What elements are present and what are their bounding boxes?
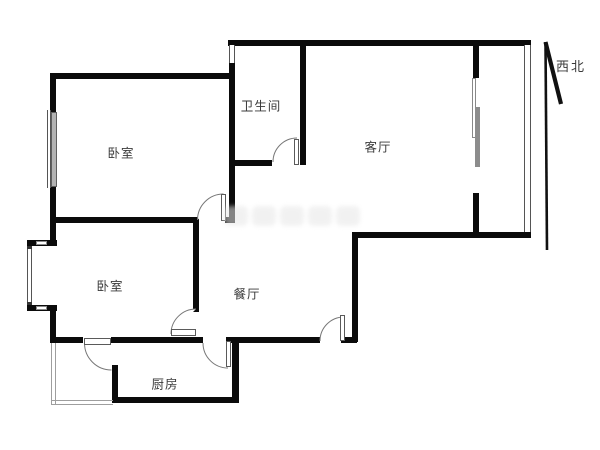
wall-balcony-partition-bottom <box>473 193 479 237</box>
room-label-bedroom1: 卧室 <box>107 143 134 162</box>
wall-balcony-partition-top <box>473 44 479 78</box>
room-label-bedroom2: 卧室 <box>96 276 123 295</box>
bay-window-top-slot <box>36 241 47 245</box>
compass-arrow-shaft <box>546 42 548 250</box>
terrace-line-bottom-outer <box>51 404 113 405</box>
wall-top <box>228 40 531 46</box>
wall-dining-right <box>352 232 358 342</box>
wall-south-2 <box>111 337 203 343</box>
wall-bathroom-left <box>229 69 235 222</box>
wall-left-mid <box>50 187 56 245</box>
room-label-kitchen: 厨房 <box>151 374 178 393</box>
terrace-line-left-outer <box>51 343 52 405</box>
watermark <box>222 204 397 234</box>
dining-kitchen-door-arc <box>203 343 228 368</box>
room-label-bathroom: 卫生间 <box>241 96 282 115</box>
terrace-line-bottom-inner <box>51 400 113 401</box>
living-right-window-icon <box>524 45 531 232</box>
wall-kitchen-left <box>112 365 118 403</box>
wall-kitchen-right <box>232 337 239 404</box>
terrace-line-left-inner <box>55 343 56 405</box>
bedroom2-door-panel <box>171 329 196 336</box>
north-small-window-cap <box>229 63 235 69</box>
wall-bathroom-bottom <box>231 160 272 166</box>
wall-south-3 <box>226 337 320 343</box>
sliding-door-moving-panel <box>475 107 480 167</box>
bay-window-glass-icon <box>27 246 33 305</box>
kitchen-terrace-door-arc <box>85 343 112 370</box>
dining-kitchen-door-panel <box>226 341 231 367</box>
wall-kitchen-bottom <box>112 397 238 403</box>
bathroom-door-panel <box>294 139 299 165</box>
bedroom1-window-icon <box>51 112 57 187</box>
wall-bedroom2-dining <box>193 217 199 312</box>
entrance-door-panel <box>340 315 345 341</box>
kitchen-terrace-door-panel <box>84 338 111 345</box>
north-small-window-icon <box>229 45 235 64</box>
compass-label: 西北 <box>556 56 586 75</box>
bay-window-bottom-slot <box>36 306 47 310</box>
wall-bedroom1-top <box>50 73 235 79</box>
wall-bedroom1-bottom <box>50 217 195 223</box>
room-label-dining: 餐厅 <box>233 284 260 303</box>
floor-plan: 卧室 卫生间 客厅 卧室 餐厅 厨房 西北 <box>0 0 600 450</box>
bay-window-cap-top <box>27 246 33 249</box>
bay-window-cap-bottom <box>27 302 33 305</box>
wall-bathroom-right <box>300 40 306 165</box>
room-label-living: 客厅 <box>364 137 391 156</box>
wall-left-upper <box>50 73 56 112</box>
